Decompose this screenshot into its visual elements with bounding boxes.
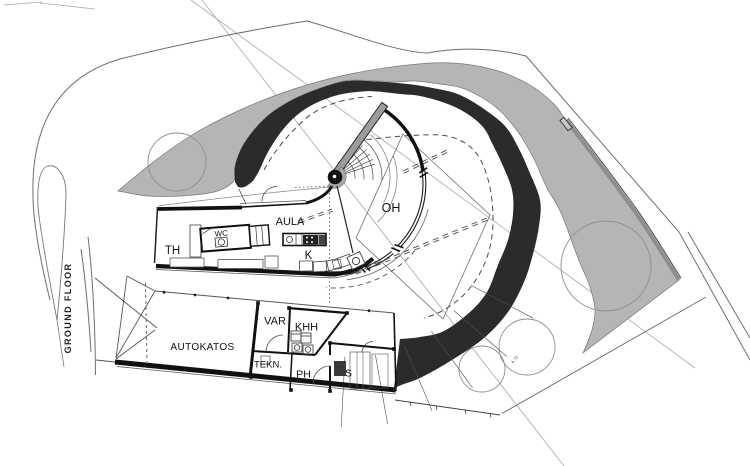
svg-text:S: S xyxy=(345,368,352,380)
svg-text:PH: PH xyxy=(296,369,311,381)
svg-text:K: K xyxy=(305,250,313,262)
svg-text:TEKN.: TEKN. xyxy=(254,360,282,371)
svg-text:OH: OH xyxy=(382,201,401,215)
svg-text:AULA: AULA xyxy=(276,216,305,228)
svg-text:TH: TH xyxy=(165,245,180,257)
svg-text:KHH: KHH xyxy=(295,322,318,334)
svg-text:AUTOKATOS: AUTOKATOS xyxy=(170,342,234,353)
svg-text:GROUND FLOOR: GROUND FLOOR xyxy=(63,263,73,354)
svg-text:VAR: VAR xyxy=(264,316,286,328)
